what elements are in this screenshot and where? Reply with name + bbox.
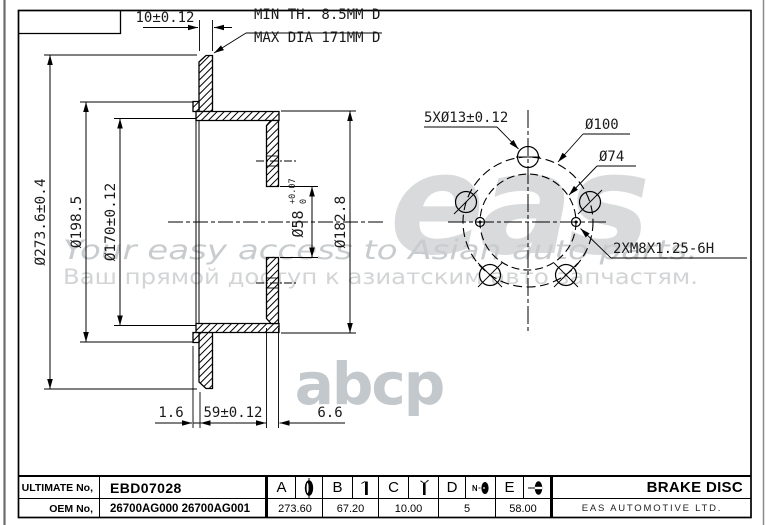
dim-flange-label: 6.6 xyxy=(317,405,342,421)
part-number: EBD07028 xyxy=(100,477,268,498)
title-block: ULTIMATE No, EBD07028 A B C D xyxy=(18,475,751,518)
watermark-tagline-ru: Ваш прямой доступ к азиатским авто запча… xyxy=(63,265,698,289)
company-name: EAS AUTOMOTIVE LTD. xyxy=(553,499,751,518)
disc-height-icon xyxy=(354,478,378,498)
dim-d-value: 5 xyxy=(439,499,496,518)
friction-ring-bottom-section xyxy=(199,333,213,389)
dim-b-letter: B xyxy=(323,477,353,498)
dim-b-icon xyxy=(353,477,379,498)
disc-outer-diameter-icon xyxy=(297,478,321,498)
disc-thickness-icon xyxy=(412,478,436,498)
dim-c-letter: C xyxy=(379,477,409,498)
ultimate-no-label: ULTIMATE No, xyxy=(18,477,100,498)
lip-top-section xyxy=(193,102,199,112)
dim-mid-diameter-label: Ø198.5 xyxy=(69,196,85,248)
watermark: eas Your easy access to Asian auto parts… xyxy=(63,124,698,418)
wear-note-min-th: MIN TH. 8.5MM D xyxy=(254,7,380,23)
lip-bottom-section xyxy=(193,333,199,343)
dim-inner-diameter-label: Ø170±0.12 xyxy=(103,183,119,262)
bolt-holes-label: 5XØ13±0.12 xyxy=(424,110,508,126)
dim-outer-diameter-label: Ø273.6±0.4 xyxy=(33,178,49,266)
hat-wall-top-section xyxy=(196,112,279,121)
revision-box xyxy=(19,11,121,34)
dim-inner-diameter xyxy=(114,119,196,326)
dim-lip-label: 1.6 xyxy=(158,405,183,421)
sheet: eas Your easy access to Asian auto parts… xyxy=(0,0,769,525)
wear-note-max-dia: MAX DIA 171MM D xyxy=(254,30,380,46)
dim-bore-tol-plus: +0.07 xyxy=(288,178,298,204)
dim-bore-tol-minus: 0 xyxy=(299,199,309,204)
title-block-row-2: OEM No, 26700AG000 26700AG001 273.60 67.… xyxy=(18,499,751,518)
dim-d-icon xyxy=(466,477,496,498)
thread-label: 2XM8X1.25-6H xyxy=(613,241,714,257)
engineering-drawing: eas Your easy access to Asian auto parts… xyxy=(0,0,769,525)
dim-e-value: 58.00 xyxy=(496,499,553,518)
dim-e-icon xyxy=(524,477,553,498)
dim-c-icon xyxy=(409,477,439,498)
dim-hat-diameter-label: Ø182.8 xyxy=(333,196,349,248)
flange-bottom-section xyxy=(267,258,279,324)
dim-b-value: 67.20 xyxy=(323,499,379,518)
dim-thickness-label: 10±0.12 xyxy=(135,10,194,26)
dim-d-letter: D xyxy=(439,477,466,498)
inner-circle-label: Ø74 xyxy=(599,149,624,165)
title-block-row-1: ULTIMATE No, EBD07028 A B C D xyxy=(18,477,751,499)
product-name: BRAKE DISC xyxy=(553,477,751,498)
oem-number: 26700AG000 26700AG001 xyxy=(100,499,268,518)
dim-bore-label: Ø58 xyxy=(289,210,307,237)
dim-a-letter: A xyxy=(268,477,296,498)
dim-e-letter: E xyxy=(496,477,524,498)
dim-a-icon xyxy=(296,477,323,498)
oem-no-label: OEM No, xyxy=(18,499,100,518)
bolt-circle-label: Ø100 xyxy=(585,117,619,133)
dim-depth-label: 59±0.12 xyxy=(203,405,262,421)
dim-c-value: 10.00 xyxy=(379,499,439,518)
flange-top-section xyxy=(267,121,279,187)
hole-count-icon xyxy=(469,478,493,498)
friction-ring-top-section xyxy=(199,56,213,112)
dim-a-value: 273.60 xyxy=(268,499,323,518)
center-bore-icon xyxy=(525,478,549,498)
